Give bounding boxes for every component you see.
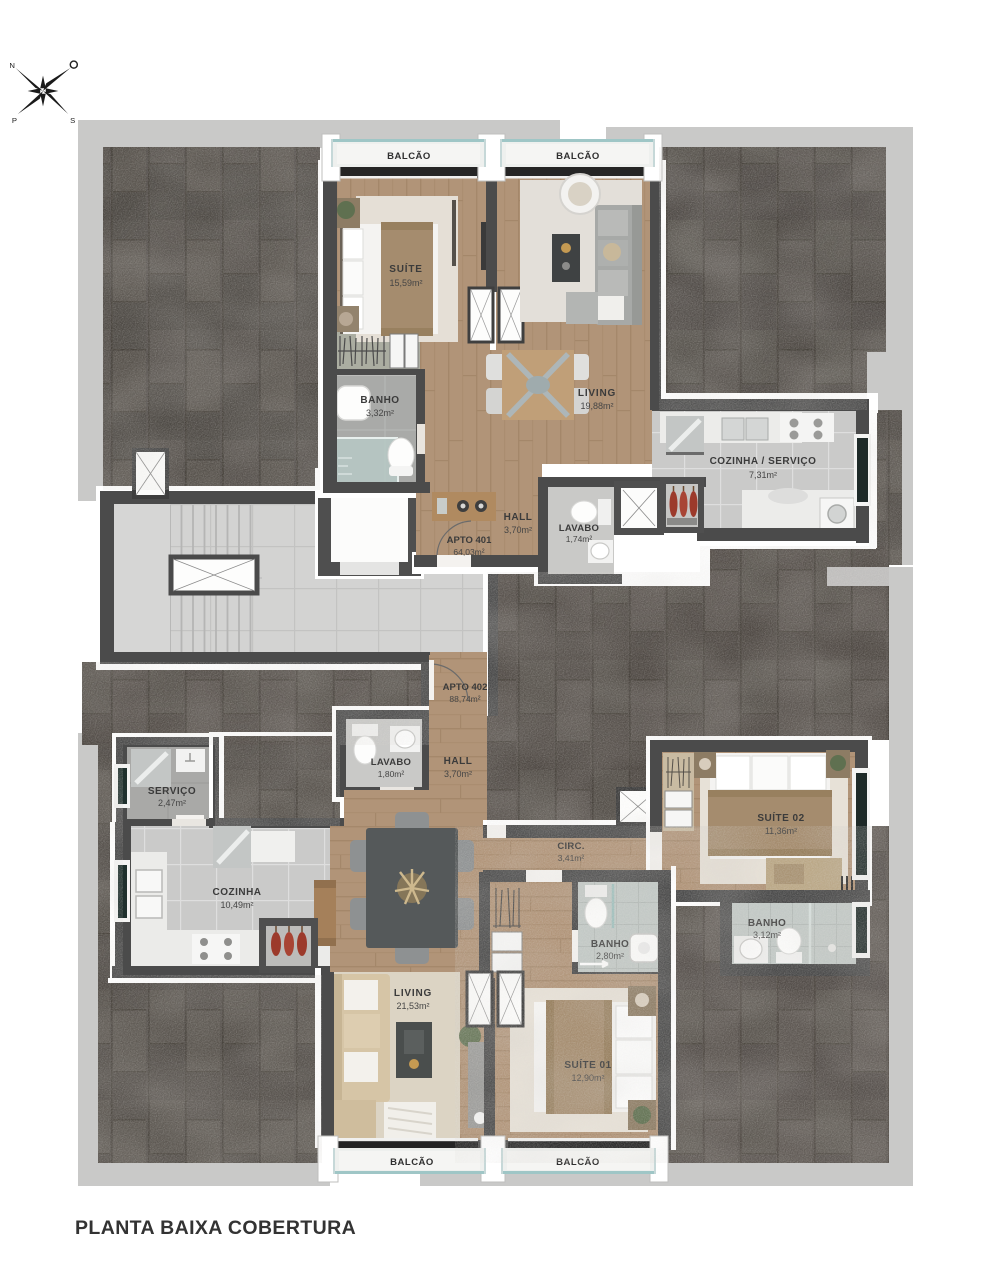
svg-text:S: S: [70, 116, 75, 125]
svg-text:15,59m²: 15,59m²: [389, 278, 422, 288]
svg-text:LAVABO: LAVABO: [559, 523, 600, 534]
svg-text:P: P: [12, 116, 17, 125]
svg-text:1,74m²: 1,74m²: [566, 534, 593, 544]
svg-text:PLANTA BAIXA COBERTURA: PLANTA BAIXA COBERTURA: [75, 1217, 356, 1239]
svg-text:19,88m²: 19,88m²: [580, 401, 613, 411]
svg-text:SUÍTE: SUÍTE: [389, 262, 422, 275]
svg-text:BANHO: BANHO: [360, 395, 399, 406]
svg-text:7,31m²: 7,31m²: [749, 470, 777, 480]
svg-text:3,70m²: 3,70m²: [444, 769, 472, 779]
svg-text:BALCÃO: BALCÃO: [390, 1157, 434, 1168]
svg-text:HALL: HALL: [444, 756, 473, 767]
svg-text:3,70m²: 3,70m²: [504, 525, 532, 535]
svg-text:SUÍTE 02: SUÍTE 02: [757, 811, 804, 824]
svg-text:COZINHA: COZINHA: [212, 887, 261, 898]
svg-text:COZINHA / SERVIÇO: COZINHA / SERVIÇO: [710, 456, 817, 467]
svg-text:21,53m²: 21,53m²: [396, 1001, 429, 1011]
svg-text:3,32m²: 3,32m²: [366, 408, 394, 418]
svg-text:64,03m²: 64,03m²: [453, 547, 484, 557]
svg-text:88,74m²: 88,74m²: [449, 694, 480, 704]
svg-text:LIVING: LIVING: [578, 388, 616, 399]
svg-text:HALL: HALL: [504, 512, 533, 523]
svg-text:LAVABO: LAVABO: [371, 757, 412, 768]
svg-text:BALCÃO: BALCÃO: [387, 151, 431, 162]
svg-text:1,80m²: 1,80m²: [378, 769, 405, 779]
svg-text:SERVIÇO: SERVIÇO: [148, 786, 196, 797]
svg-text:2,47m²: 2,47m²: [158, 798, 186, 808]
svg-text:BALCÃO: BALCÃO: [556, 151, 600, 162]
svg-text:APTO 401: APTO 401: [447, 535, 492, 546]
svg-text:LIVING: LIVING: [394, 988, 432, 999]
svg-text:APTO 402: APTO 402: [443, 682, 488, 693]
svg-text:10,49m²: 10,49m²: [220, 900, 253, 910]
svg-text:N: N: [9, 61, 15, 70]
